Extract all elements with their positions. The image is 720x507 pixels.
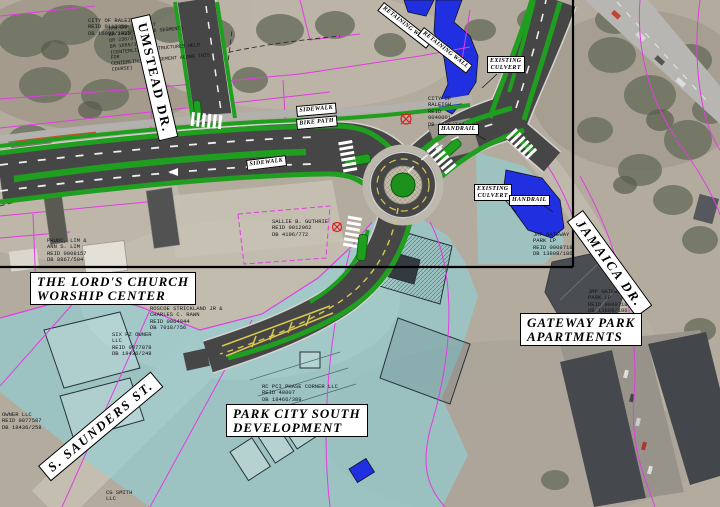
parcel-note-jmp-gateway-1: JMP GATEWAY PARK LP REID 0008718 DB 1380… [533,232,573,258]
place-label-park-city: PARK CITY SOUTH DEVELOPMENT [226,404,368,437]
parcel-note-six-pz: SIX PZ OWNER LLC REID 0077078 DB 18436/2… [112,332,152,358]
callout-existing-culvert-1: EXISTING CULVERT [487,56,525,73]
parcel-note-cg-smith: CG SMITH LLC [106,490,132,503]
parcel-note-sallie-guthrie: SALLIE B. GUTHRIE REID 0012962 DB 4196/7… [272,219,328,238]
callout-existing-culvert-2: EXISTING CULVERT [474,184,512,201]
place-label-gateway: GATEWAY PARK APARTMENTS [520,313,642,346]
parcel-note-rc-pci: RC PCI PHASE CORNER LLC REID 48007 DB 18… [262,384,338,403]
roundabout [366,148,440,222]
parcel-note-phuoc-lim: PHUOC, LIM & ANN S. LIM REID 0008157 DB … [47,238,87,264]
callout-handrail-1: HANDRAIL [438,124,479,135]
parcel-note-roscoe: ROSCOE STRICKLAND JR & CHARLES C. RAWN R… [150,306,223,332]
place-label-church: THE LORD'S CHURCH WORSHIP CENTER [30,272,196,305]
parcel-note-owner-left: OWNER LLC REID 0077587 DB 18436/258 [2,412,42,431]
plan-sheet: UMSTEAD DR. JAMAICA DR. S. SAUNDERS ST. … [0,0,720,507]
callout-handrail-2: HANDRAIL [509,195,550,206]
